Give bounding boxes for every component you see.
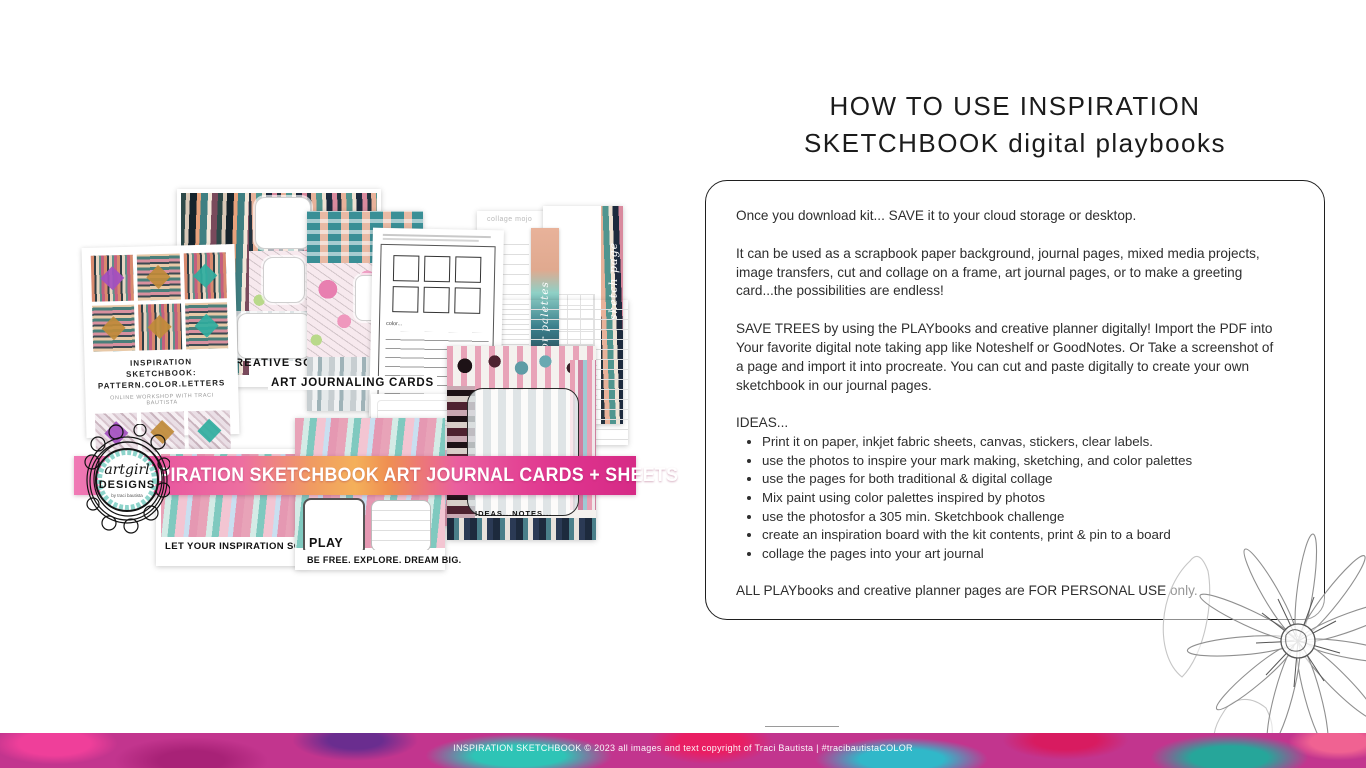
box	[424, 256, 451, 283]
ideas-notes-label: IDEAS...NOTES...	[475, 509, 552, 518]
ghost-pattern	[468, 389, 578, 515]
ghost-frame	[467, 388, 579, 516]
box	[455, 256, 482, 283]
flower-outer-petals	[1163, 556, 1272, 761]
box	[392, 286, 419, 313]
divider-line	[765, 726, 839, 727]
logo-script-text: artgirl	[104, 462, 149, 478]
card-frame	[237, 313, 311, 359]
paragraph-save-trees: SAVE TREES by using the PLAYbooks and cr…	[736, 320, 1282, 395]
logo-byline-text: by traci bautista	[111, 493, 143, 498]
flower-sketch	[1128, 503, 1366, 768]
diamond-mark	[197, 419, 221, 443]
paragraph-intro: Once you download kit... SAVE it to your…	[736, 207, 1282, 226]
title-line-1: HOW TO USE INSPIRATION	[705, 88, 1325, 125]
card-frame	[263, 257, 305, 303]
inspiration-sketchbook-title-card: INSPIRATION SKETCHBOOK: PATTERN.COLOR.LE…	[82, 244, 240, 438]
title-card-line2: PATTERN.COLOR.LETTERS	[94, 377, 229, 392]
box	[454, 287, 481, 314]
list-item: use the photos to inspire your mark maki…	[762, 452, 1282, 471]
art-thumbnail	[188, 410, 231, 451]
artgirl-designs-logo: artgirl DESIGNS by traci bautista	[84, 424, 170, 536]
ideas-notes-card: IDEAS...NOTES...	[447, 346, 596, 540]
banner-title: INSPIRATION SKETCHBOOK ART JOURNAL CARDS…	[128, 465, 679, 487]
card-frame	[255, 197, 311, 249]
play-label: PLAY	[309, 536, 343, 550]
thumbnail-grid	[91, 252, 228, 352]
diamond-mark	[147, 265, 171, 289]
title-line-2: SKETCHBOOK digital playbooks	[705, 125, 1325, 162]
art-thumbnail	[92, 305, 136, 352]
diamond-mark	[102, 316, 126, 340]
paragraph-uses: It can be used as a scrapbook paper back…	[736, 245, 1282, 301]
diamond-mark	[148, 315, 172, 339]
ideas-heading: IDEAS...	[736, 414, 1282, 433]
art-thumbnail	[91, 255, 135, 302]
art-journaling-cards-label: ART JOURNALING CARDS	[268, 376, 437, 390]
page-title: HOW TO USE INSPIRATION SKETCHBOOK digita…	[705, 88, 1325, 162]
list-item: Print it on paper, inkjet fabric sheets,…	[762, 433, 1282, 452]
art-thumbnail	[183, 252, 227, 299]
bottom-art	[447, 518, 596, 540]
tiny-text-line	[383, 238, 479, 242]
diamond-mark	[100, 266, 124, 290]
flower-petals	[1187, 533, 1366, 750]
art-thumbnail	[185, 302, 229, 349]
box	[423, 287, 450, 314]
art-thumbnail	[137, 253, 181, 300]
color-field-label: color...	[386, 321, 402, 327]
page: HOW TO USE INSPIRATION SKETCHBOOK digita…	[0, 0, 1366, 768]
art-thumbnail	[138, 303, 182, 350]
notes-frame	[371, 500, 431, 552]
copyright-text: INSPIRATION SKETCHBOOK © 2023 all images…	[0, 743, 1366, 753]
collage-mojo-label: collage mojo	[487, 216, 532, 223]
title-card-subtitle: ONLINE WORKSHOP WITH TRACI BAUTISTA	[94, 392, 229, 408]
list-item: use the pages for both traditional & dig…	[762, 470, 1282, 489]
diamond-mark	[193, 264, 217, 288]
be-free-label: BE FREE. EXPLORE. DREAM BIG.	[307, 555, 461, 565]
photo-boxes	[392, 255, 481, 314]
box	[393, 255, 420, 282]
diamond-mark	[194, 314, 218, 338]
footer-bar: INSPIRATION SKETCHBOOK © 2023 all images…	[0, 733, 1366, 768]
logo-name-text: DESIGNS	[99, 479, 156, 491]
